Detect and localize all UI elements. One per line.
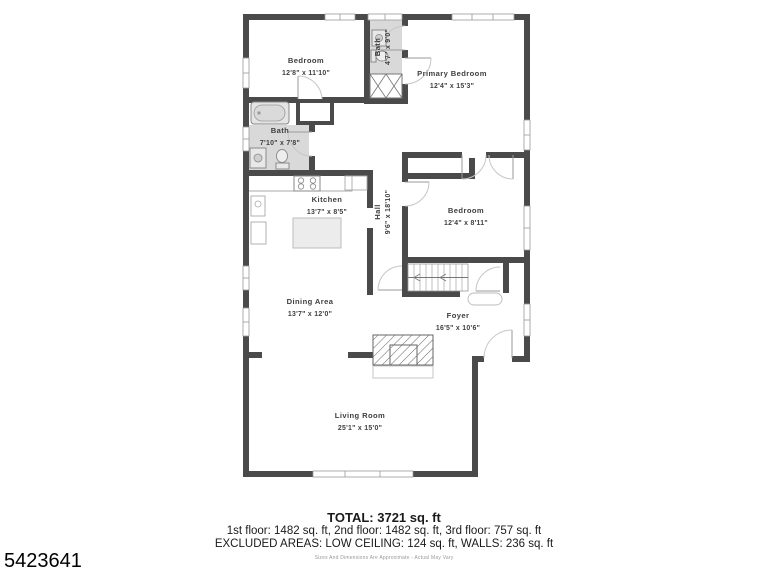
window [313, 471, 413, 477]
room-dims: 16'5" x 10'6" [436, 325, 480, 332]
excluded-areas: EXCLUDED AREAS: LOW CEILING: 124 sq. ft,… [0, 538, 768, 551]
door [489, 155, 513, 179]
room-name: Bath [271, 126, 289, 135]
door [476, 267, 500, 291]
disclaimer: Sizes And Dimensions Are Approximate - A… [0, 555, 768, 561]
area-summary: TOTAL: 3721 sq. ft 1st floor: 1482 sq. f… [0, 511, 768, 561]
entry-door [484, 330, 512, 358]
stove [294, 176, 320, 191]
window [524, 206, 530, 250]
floorplan-drawing: Bedroom 12'8" x 11'10" Bath 4'7" x 9'0" … [0, 0, 768, 576]
room-label-bedroom-upper-left: Bedroom 12'8" x 11'10" [282, 56, 330, 77]
sink [250, 148, 266, 168]
room-dims: 12'4" x 15'3" [430, 83, 474, 90]
window [524, 304, 530, 336]
room-dims: 12'4" x 8'11" [444, 220, 488, 227]
room-dims: 12'8" x 11'10" [282, 70, 330, 77]
window [243, 127, 249, 151]
window [368, 14, 402, 20]
room-dims: 13'7" x 8'5" [307, 209, 347, 216]
room-label-foyer: Foyer 16'5" x 10'6" [436, 311, 480, 332]
floorplan-page: Bedroom 12'8" x 11'10" Bath 4'7" x 9'0" … [0, 0, 768, 576]
room-label-primary-bedroom: Primary Bedroom 12'4" x 15'3" [417, 69, 487, 90]
room-name: Hall [373, 204, 382, 220]
room-label-dining-area: Dining Area 13'7" x 12'0" [287, 297, 334, 318]
room-dims: 25'1" x 15'0" [338, 425, 382, 432]
room-name: Dining Area [287, 297, 334, 306]
door [405, 182, 429, 206]
window [243, 266, 249, 290]
floor-areas: 1st floor: 1482 sq. ft, 2nd floor: 1482 … [0, 525, 768, 538]
window [452, 14, 514, 20]
window [243, 308, 249, 336]
room-name: Living Room [335, 411, 385, 420]
room-name: Kitchen [312, 195, 343, 204]
listing-id: 5423641 [4, 550, 82, 573]
room-dims: 13'7" x 12'0" [288, 311, 332, 318]
door [378, 266, 402, 290]
kitchen-island [293, 218, 341, 248]
window [524, 120, 530, 150]
room-dims: 4'7" x 9'0" [385, 29, 392, 65]
room-name: Bedroom [288, 56, 324, 65]
refrigerator [251, 222, 266, 244]
fireplace [373, 335, 433, 378]
room-label-living-room: Living Room 25'1" x 15'0" [335, 411, 385, 432]
room-name: Primary Bedroom [417, 69, 487, 78]
room-label-hall: Hall 9'6" x 18'10" [373, 190, 392, 234]
linen-closet [370, 74, 402, 98]
bathtub [251, 102, 289, 124]
total-area: TOTAL: 3721 sq. ft [0, 511, 768, 525]
kitchen-sink-unit [251, 196, 265, 216]
room-dims: 9'6" x 18'10" [385, 190, 392, 234]
room-label-bedroom-middle-right: Bedroom 12'4" x 8'11" [444, 206, 488, 227]
door [298, 76, 322, 100]
room-name: Bedroom [448, 206, 484, 215]
window [243, 58, 249, 88]
bedroom-closet [298, 101, 332, 123]
room-dims: 7'10" x 7'8" [260, 140, 300, 147]
room-name: Bath [373, 38, 382, 56]
room-label-kitchen: Kitchen 13'7" x 8'5" [307, 195, 347, 216]
window [325, 14, 355, 20]
toilet [276, 150, 289, 170]
room-name: Foyer [447, 311, 470, 320]
